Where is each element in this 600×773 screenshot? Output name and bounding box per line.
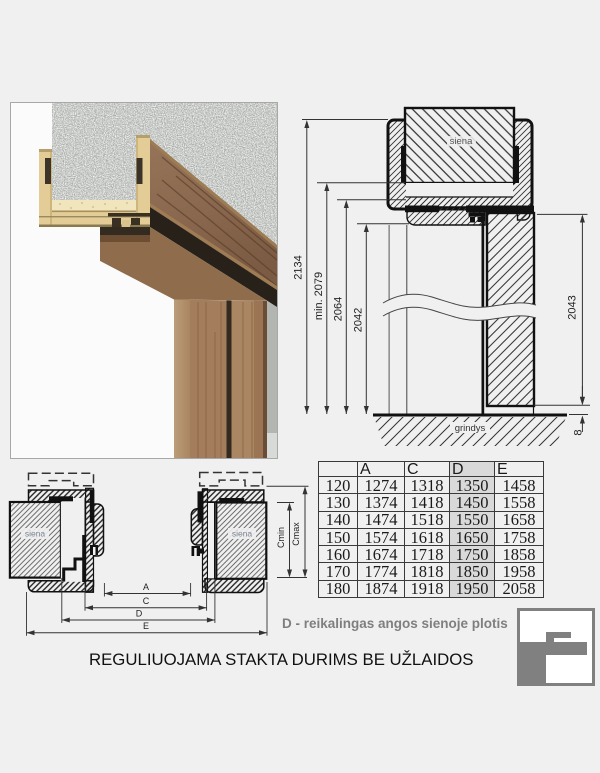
svg-text:A: A [143,582,149,592]
svg-text:siena: siena [450,136,473,147]
svg-text:2134: 2134 [293,255,305,279]
svg-text:8: 8 [573,429,585,435]
svg-text:Cmin: Cmin [276,527,286,548]
svg-text:siena: siena [232,529,253,539]
svg-text:Cmax: Cmax [291,522,301,546]
svg-text:2043: 2043 [567,295,579,319]
svg-text:2042: 2042 [353,308,365,332]
svg-text:D: D [136,609,143,619]
svg-text:C: C [143,596,150,606]
svg-text:grindys: grindys [455,423,486,434]
svg-text:siena: siena [25,529,46,539]
svg-text:min. 2079: min. 2079 [313,272,325,320]
svg-text:E: E [143,621,149,631]
svg-text:2064: 2064 [333,297,345,321]
